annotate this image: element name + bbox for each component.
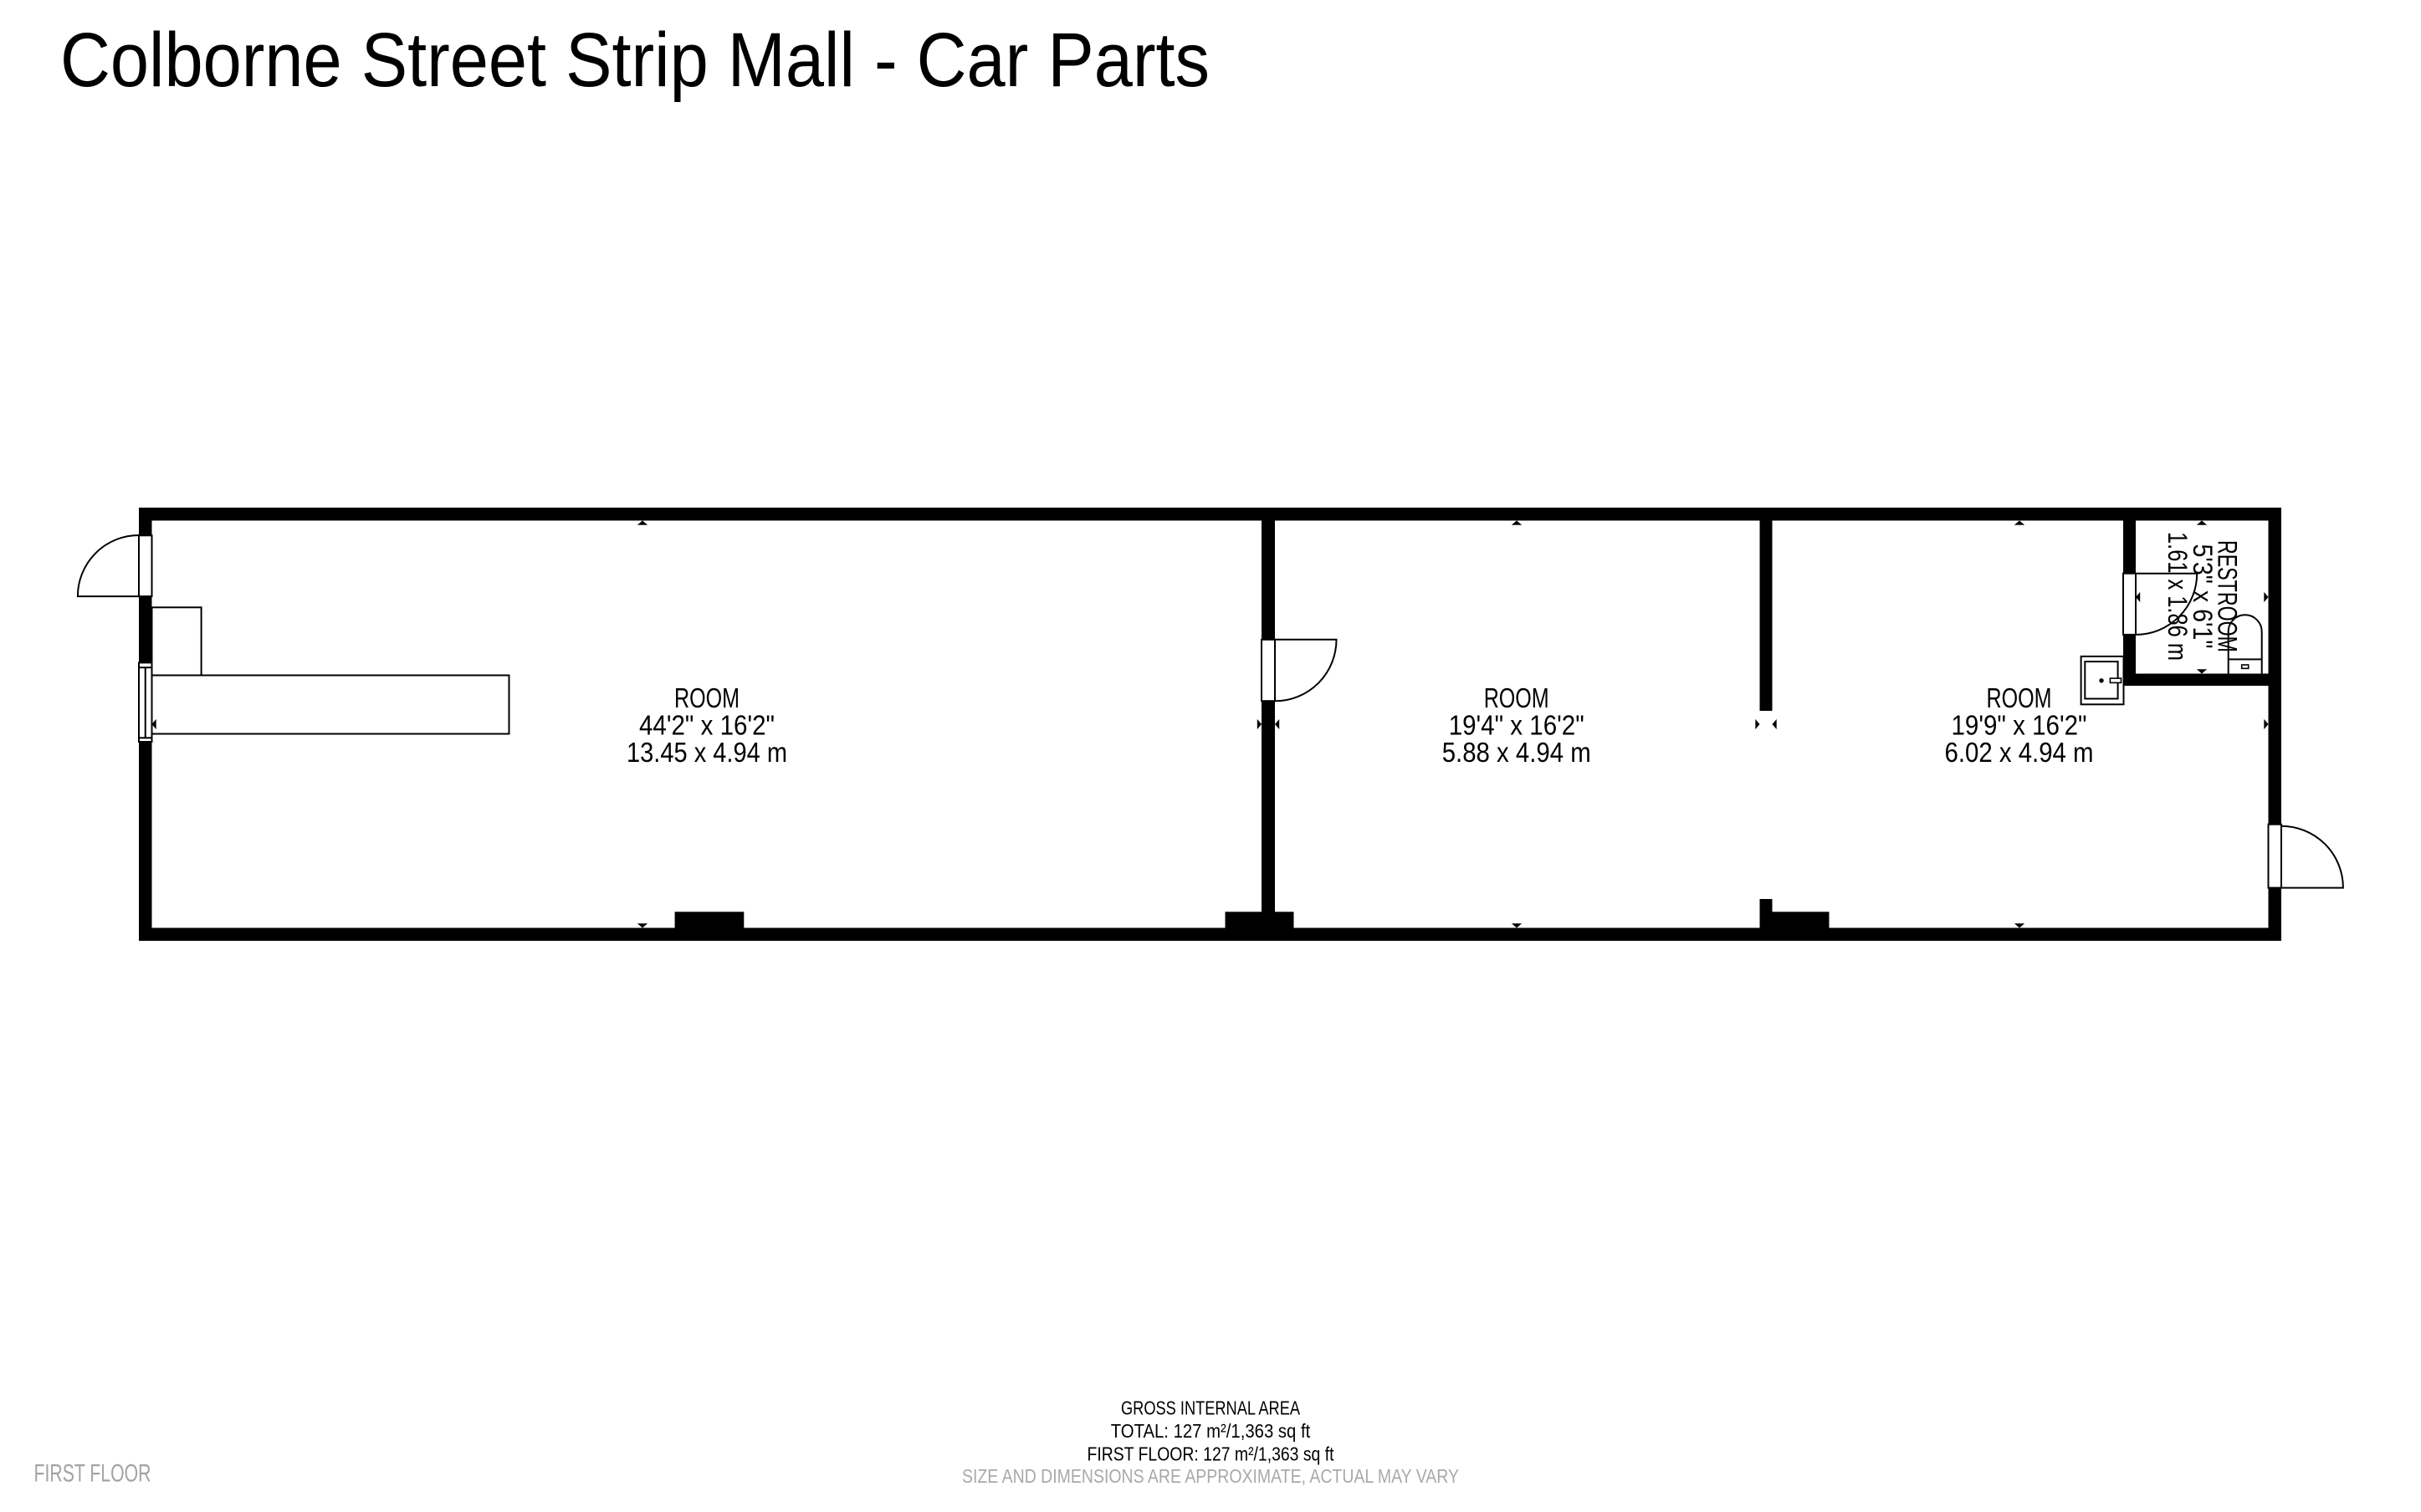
svg-text:44'2" x 16'2": 44'2" x 16'2" [639, 710, 775, 741]
svg-text:19'4" x 16'2": 19'4" x 16'2" [1449, 710, 1584, 741]
svg-text:ROOM: ROOM [1987, 682, 2052, 713]
svg-text:GROSS INTERNAL AREA: GROSS INTERNAL AREA [1121, 1397, 1301, 1418]
svg-text:19'9" x 16'2": 19'9" x 16'2" [1952, 710, 2087, 741]
svg-text:Colborne Street Strip Mall - C: Colborne Street Strip Mall - Car Parts [60, 18, 1210, 103]
svg-text:ROOM: ROOM [1484, 682, 1549, 713]
svg-text:5.88 x 4.94 m: 5.88 x 4.94 m [1442, 737, 1591, 768]
svg-text:ROOM: ROOM [674, 682, 740, 713]
svg-text:13.45 x 4.94 m: 13.45 x 4.94 m [627, 737, 787, 768]
svg-text:TOTAL: 127 m²/1,363 sq ft: TOTAL: 127 m²/1,363 sq ft [1111, 1420, 1311, 1442]
svg-text:SIZE AND DIMENSIONS ARE APPROX: SIZE AND DIMENSIONS ARE APPROXIMATE, ACT… [962, 1465, 1459, 1487]
svg-text:6.02 x 4.94 m: 6.02 x 4.94 m [1945, 737, 2094, 768]
svg-text:FIRST FLOOR: 127 m²/1,363 sq f: FIRST FLOOR: 127 m²/1,363 sq ft [1088, 1443, 1335, 1465]
svg-text:FIRST FLOOR: FIRST FLOOR [34, 1460, 151, 1488]
svg-text:1.61 x 1.86 m: 1.61 x 1.86 m [2163, 532, 2193, 661]
